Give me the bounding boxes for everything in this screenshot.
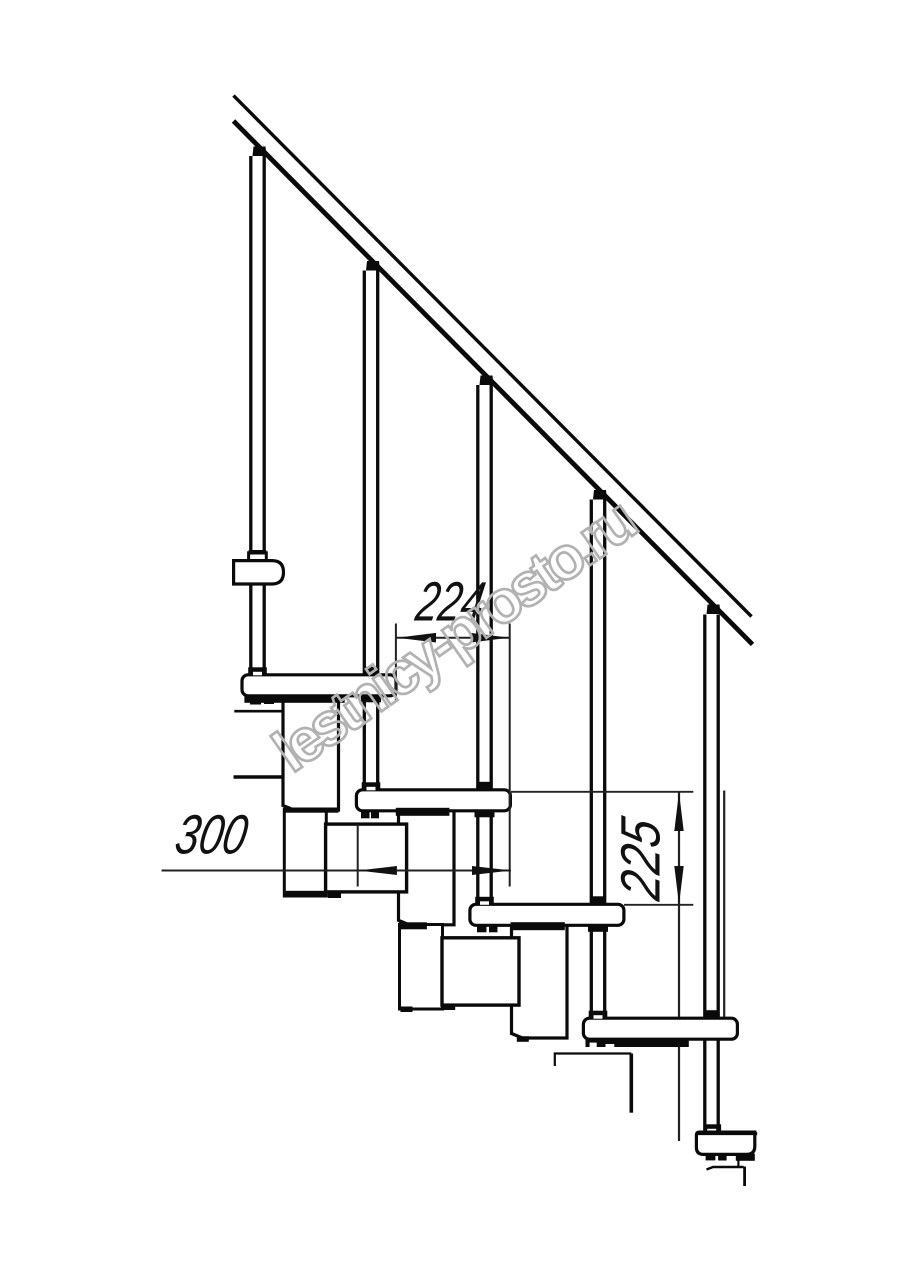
svg-text:225: 225 — [611, 812, 673, 906]
svg-text:300: 300 — [171, 803, 253, 865]
